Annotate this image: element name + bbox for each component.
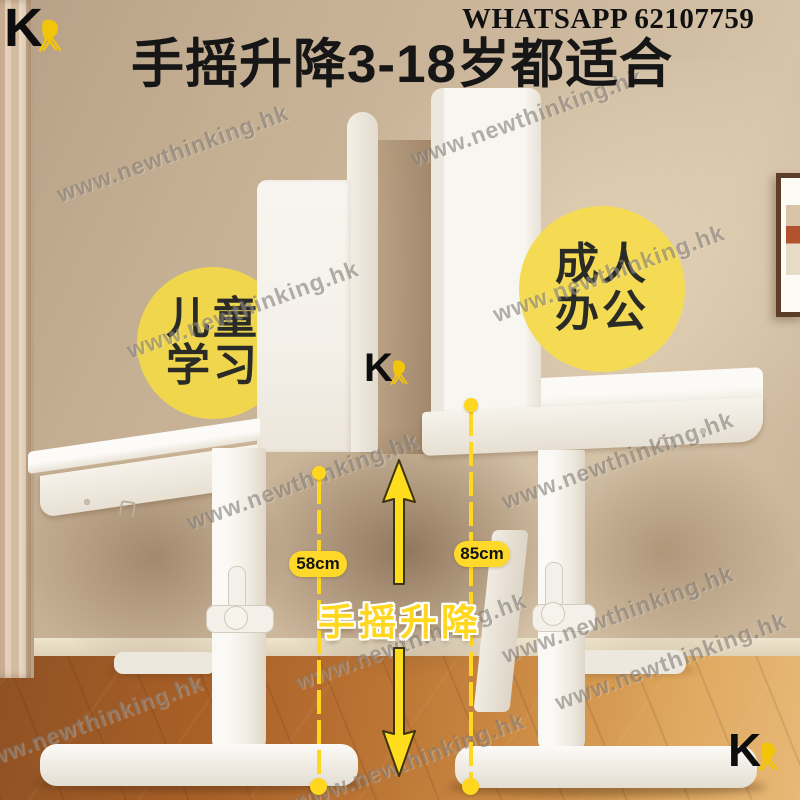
arrow-down-icon <box>379 646 419 780</box>
left-desk-back-panel <box>257 180 351 452</box>
measure-dot <box>310 778 327 795</box>
product-poster: 儿童 学习 成人 办公 www.newthinking.hk www.newth… <box>0 0 800 800</box>
picture-frame-art <box>786 205 800 275</box>
crank-lift-label: 手摇升降 <box>318 592 482 646</box>
measure-dot <box>312 466 326 480</box>
brand-logo-bottom-right: K <box>728 730 783 776</box>
page-title: 手摇升降3-18岁都适合 <box>96 22 708 98</box>
chair-icon <box>386 359 412 390</box>
measure-dot <box>462 778 479 795</box>
measure-dot <box>464 398 478 412</box>
left-desk-foot <box>40 744 358 786</box>
right-desk-foot <box>455 746 757 788</box>
left-desk-far-foot <box>114 652 216 674</box>
height-label-58cm: 58cm <box>289 551 347 577</box>
badge-children-line2: 学习 <box>166 343 260 390</box>
left-desk-crank-knob <box>224 606 248 630</box>
arrow-up-icon <box>379 458 419 588</box>
height-label-85cm: 85cm <box>454 541 510 567</box>
brand-logo-top-left: K <box>4 4 67 57</box>
chair-icon <box>33 18 67 57</box>
left-desk-screw <box>84 499 90 505</box>
left-desk-bag-hook <box>119 500 136 517</box>
chair-icon <box>753 741 783 776</box>
brand-logo-center: K <box>364 350 412 390</box>
